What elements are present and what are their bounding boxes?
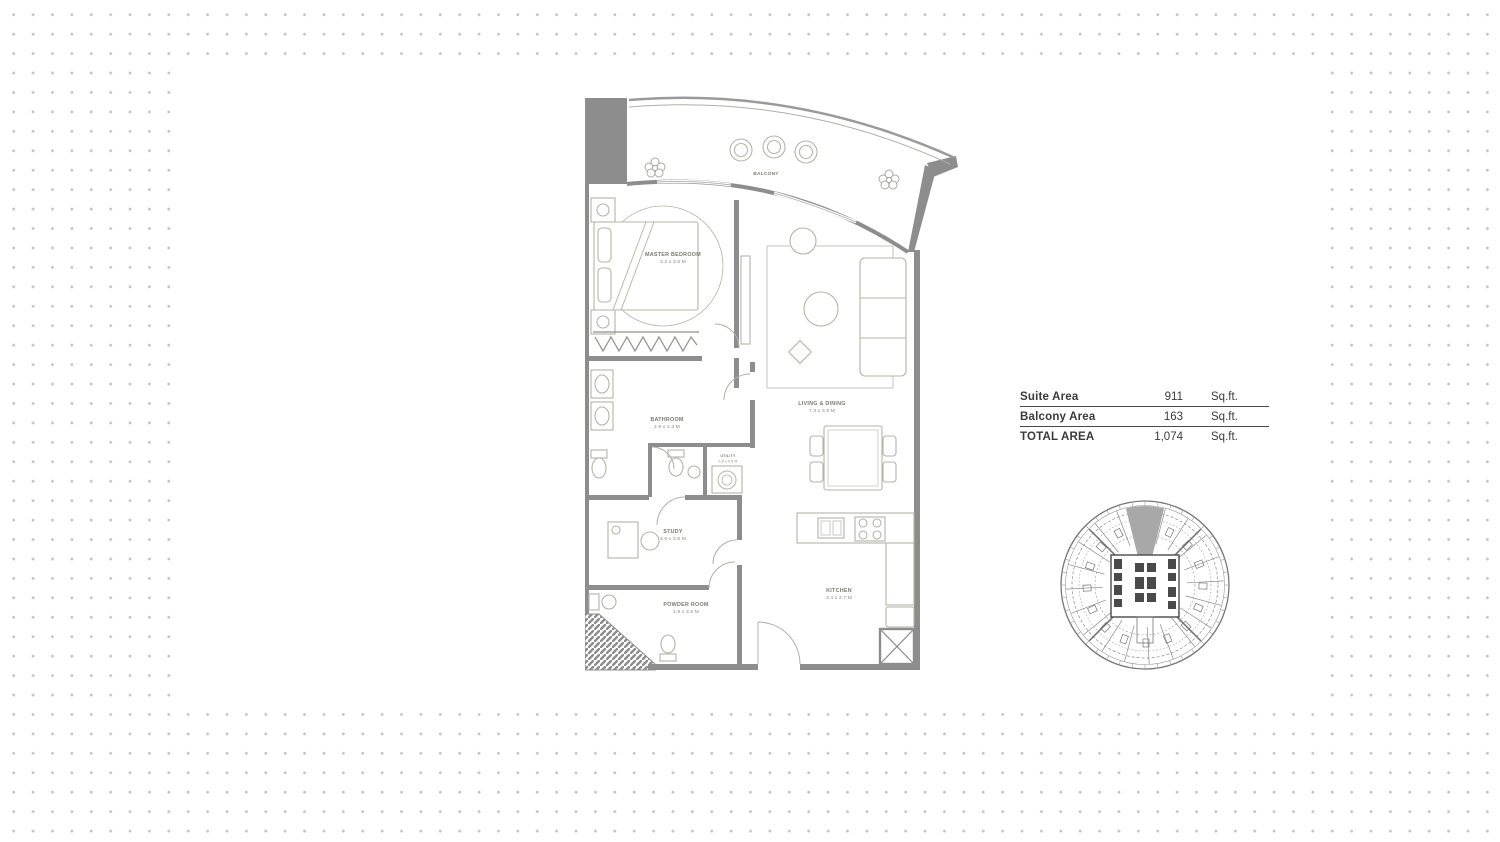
vanity xyxy=(589,594,599,610)
area-row-value: 1,074 xyxy=(1125,431,1183,443)
room-label: POWDER ROOM xyxy=(663,602,709,608)
area-row-unit: Sq.ft. xyxy=(1183,411,1269,423)
toilet-icon xyxy=(661,635,675,653)
room-label: KITCHEN xyxy=(826,588,852,594)
armchair-icon xyxy=(804,292,838,326)
plant-icon xyxy=(879,170,899,189)
toilet-icon xyxy=(591,450,607,458)
area-row-value: 911 xyxy=(1125,391,1183,403)
living-dining: LIVING & DINING 7.3 x 3.9 M xyxy=(741,228,906,490)
balcony-label: BALCONY xyxy=(753,171,779,177)
study: STUDY 3.0 x 3.6 M xyxy=(608,522,686,558)
sink-icon xyxy=(591,402,613,430)
sink-icon xyxy=(688,466,700,478)
area-row-label: Balcony Area xyxy=(1020,411,1125,423)
room-label: UTILITY xyxy=(720,454,736,458)
sink-icon xyxy=(602,595,616,609)
area-row-value: 163 xyxy=(1125,411,1183,423)
chair-icon xyxy=(810,462,823,482)
toilet-icon xyxy=(668,450,684,457)
side-table xyxy=(789,341,812,364)
bed-icon xyxy=(594,222,698,310)
table-row: TOTAL AREA 1,074 Sq.ft. xyxy=(1020,427,1269,446)
hatched-wall xyxy=(585,614,655,670)
wardrobe-icon xyxy=(593,332,699,351)
room-dims: 3.2 x 3.6 M xyxy=(660,259,686,265)
sofa-icon xyxy=(860,258,906,376)
room-label: MASTER BEDROOM xyxy=(645,252,701,258)
room-dims: 2.9 x 2.3 M xyxy=(654,424,680,430)
chair-icon xyxy=(883,436,896,456)
table-row: Suite Area 911 Sq.ft. xyxy=(1020,387,1269,407)
chair-icon xyxy=(883,462,896,482)
bathroom: BATHROOM 2.9 x 2.3 M xyxy=(591,370,700,478)
sink-icon xyxy=(591,370,613,398)
area-summary-table: Suite Area 911 Sq.ft. Balcony Area 163 S… xyxy=(1020,387,1269,446)
chair-icon xyxy=(641,532,659,550)
page: BALCONY MASTER BEDROOM 3.2 x 3.6 M xyxy=(0,0,1500,842)
entry-door xyxy=(758,622,800,664)
room-dims: 7.3 x 3.9 M xyxy=(809,408,835,414)
kitchen: KITCHEN 3.4 x 2.7 M xyxy=(797,513,914,627)
balcony-chairs xyxy=(730,136,817,163)
floor-plan: BALCONY MASTER BEDROOM 3.2 x 3.6 M xyxy=(585,90,963,672)
building-key-plan xyxy=(1057,497,1234,674)
room-dims: 3.0 x 3.6 M xyxy=(660,536,686,542)
shaft xyxy=(880,629,914,664)
fridge-icon xyxy=(886,607,914,627)
nightstand-icon xyxy=(591,198,615,222)
nightstand-icon xyxy=(591,310,615,334)
room-dims: 1.9 x 3.6 M xyxy=(673,609,699,615)
room-label: LIVING & DINING xyxy=(798,401,845,407)
area-row-unit: Sq.ft. xyxy=(1183,431,1269,443)
area-row-unit: Sq.ft. xyxy=(1183,391,1269,403)
table-row: Balcony Area 163 Sq.ft. xyxy=(1020,407,1269,427)
utility-room: UTILITY 0.8 x 0.9 M xyxy=(712,454,742,493)
room-dims: 0.8 x 0.9 M xyxy=(719,460,738,464)
balcony: BALCONY xyxy=(629,98,955,189)
master-bedroom: MASTER BEDROOM 3.2 x 3.6 M xyxy=(591,198,723,334)
armchair-icon xyxy=(790,228,816,254)
room-label: STUDY xyxy=(663,529,683,535)
area-row-label: Suite Area xyxy=(1020,391,1125,403)
tv-console xyxy=(741,256,750,344)
room-dims: 3.4 x 2.7 M xyxy=(826,595,852,601)
area-row-label: TOTAL AREA xyxy=(1020,431,1125,443)
dining-table-icon xyxy=(824,426,882,490)
room-label: BATHROOM xyxy=(650,417,684,423)
plant-icon xyxy=(645,158,665,177)
kitchen-counter xyxy=(886,543,914,605)
chair-icon xyxy=(810,436,823,456)
